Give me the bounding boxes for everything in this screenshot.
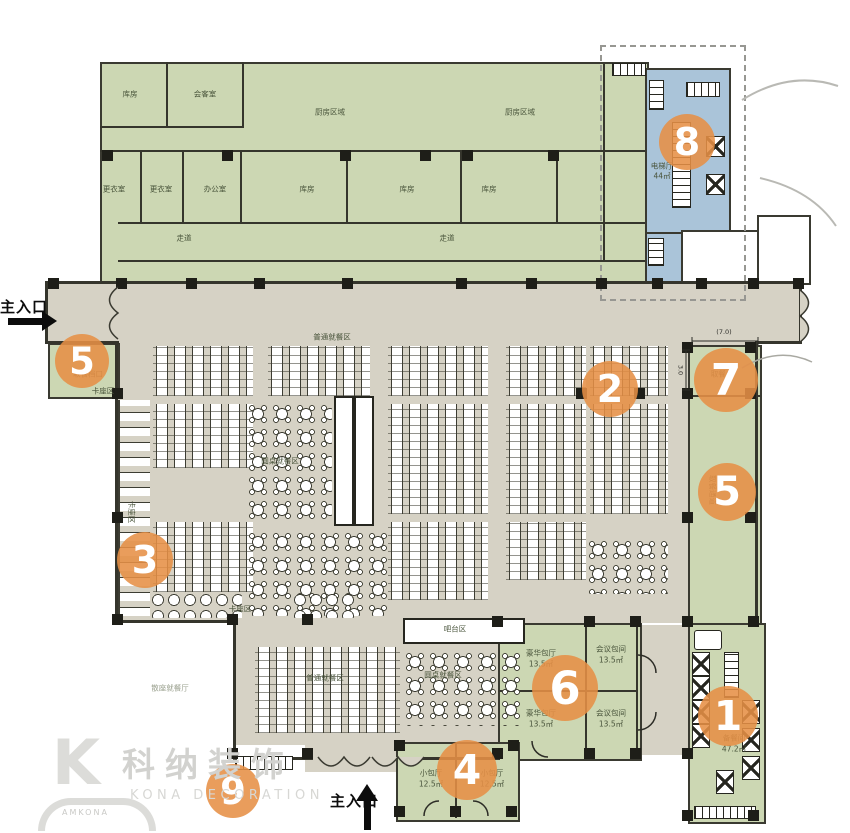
entrance-arrow-right-icon <box>8 318 42 325</box>
kitchen-counter <box>649 80 664 110</box>
room-label: 走道 <box>177 234 192 242</box>
elevator-shaft <box>706 174 725 195</box>
entrance-arrow-up-icon <box>364 800 371 830</box>
zone-label: 卡座区 <box>92 387 115 395</box>
dimension-label: (7.0) <box>716 329 731 336</box>
room-label: 会议包间 <box>596 645 626 653</box>
structural-columns <box>0 0 11 11</box>
room-label: 办公室 <box>204 185 227 193</box>
zone-marker-5-left[interactable]: 5 <box>55 334 109 388</box>
zone-label: 卡座区 <box>127 501 135 524</box>
logo-arc-text: AMKONA <box>62 808 109 817</box>
room-label: 库房 <box>400 185 415 193</box>
room-label: 厨房区域 <box>315 108 345 116</box>
zone-label: 圆桌就餐区 <box>261 457 299 465</box>
dimension-label: 3.0 <box>677 365 684 375</box>
room-label: 库房 <box>482 185 497 193</box>
round-tables-cluster <box>403 650 525 726</box>
wall <box>460 150 462 222</box>
room-label: 更衣室 <box>103 185 126 193</box>
entrance-arrow-up-icon <box>356 784 378 801</box>
dining-tables-cluster <box>153 346 253 396</box>
round-tables-cluster <box>586 538 668 594</box>
equipment-box <box>742 756 760 780</box>
zone-marker-3[interactable]: 3 <box>117 532 173 588</box>
wall <box>100 126 244 128</box>
dining-tables-cluster <box>506 346 586 396</box>
dining-tables-cluster <box>388 346 488 396</box>
equipment <box>648 238 664 266</box>
floor-plan-canvas: { "plan": { "company_cn": "科纳装饰", "compa… <box>0 0 850 833</box>
room-label: 厨房区域 <box>505 108 535 116</box>
room-area-label: 47.2㎡ <box>722 745 746 753</box>
dining-tables-cluster <box>388 404 488 514</box>
room-label: 走道 <box>440 234 455 242</box>
equipment-box <box>716 770 734 794</box>
zone-marker-6[interactable]: 6 <box>532 655 598 721</box>
window-strip <box>612 63 646 76</box>
wall <box>166 62 168 128</box>
room-label: 库房 <box>123 90 138 98</box>
equipment-box <box>692 652 710 676</box>
room-label: 库房 <box>300 185 315 193</box>
zone-label: 圆桌就餐区 <box>424 671 462 679</box>
zone-marker-1[interactable]: 1 <box>698 686 758 746</box>
dining-tables-cluster <box>255 647 400 733</box>
zone-label: 散座就餐厅 <box>151 684 189 692</box>
wall-hall-top <box>45 281 802 284</box>
wall <box>182 150 184 222</box>
wall <box>603 64 605 260</box>
zone-marker-5-right[interactable]: 5 <box>698 463 756 521</box>
wall <box>636 623 638 757</box>
room-label: 更衣室 <box>150 185 173 193</box>
company-logo: K <box>52 726 100 799</box>
wall <box>240 150 242 222</box>
window-strip <box>694 806 756 819</box>
side-room-right <box>757 215 811 285</box>
wall <box>140 150 142 222</box>
entrance-arrow-right-icon <box>42 311 57 331</box>
zone-label: 普通就餐区 <box>313 333 351 341</box>
wall <box>115 620 236 623</box>
room-area-label: 13.5㎡ <box>599 720 623 728</box>
zone-label: 普通就餐区 <box>306 674 344 682</box>
wall <box>556 150 558 222</box>
room-label: 会客室 <box>194 90 217 98</box>
zone-marker-2[interactable]: 2 <box>582 361 638 417</box>
dining-tables-cluster <box>268 346 370 396</box>
room-area-label: 13.5㎡ <box>529 720 553 728</box>
dining-tables-cluster <box>506 404 586 514</box>
chair-row <box>292 592 356 618</box>
wall-corridor-top <box>118 222 645 224</box>
wall-hall-right <box>799 281 802 343</box>
dining-tables-cluster <box>506 522 586 580</box>
room-label: 豪华包厅 <box>526 649 556 657</box>
dining-tables-cluster <box>388 522 488 600</box>
wall <box>346 150 348 222</box>
company-name-chinese: 科纳装饰 <box>122 738 294 786</box>
wall-corridor-bottom <box>118 260 645 262</box>
buffet-island <box>334 396 374 526</box>
room-area-label: 13.5㎡ <box>599 656 623 664</box>
main-entrance-label-left: 主入口 <box>0 296 48 317</box>
pantry-desk <box>694 630 722 650</box>
dining-tables-cluster <box>153 404 253 468</box>
zone-marker-8[interactable]: 8 <box>659 114 715 170</box>
zone-marker-7[interactable]: 7 <box>694 348 758 412</box>
dining-tables-cluster <box>590 404 668 514</box>
zone-label: 卡座区 <box>229 605 252 613</box>
wall <box>242 62 244 128</box>
wall <box>755 341 802 344</box>
zone-marker-4[interactable]: 4 <box>437 740 497 800</box>
zone-label: 吧台区 <box>444 625 467 633</box>
site-curve <box>742 80 838 100</box>
company-name-english: KONA DECORATION <box>130 788 324 803</box>
room-area-label: 44㎡ <box>653 172 670 180</box>
kitchen-counter <box>686 82 720 97</box>
room-label: 会议包间 <box>596 709 626 717</box>
